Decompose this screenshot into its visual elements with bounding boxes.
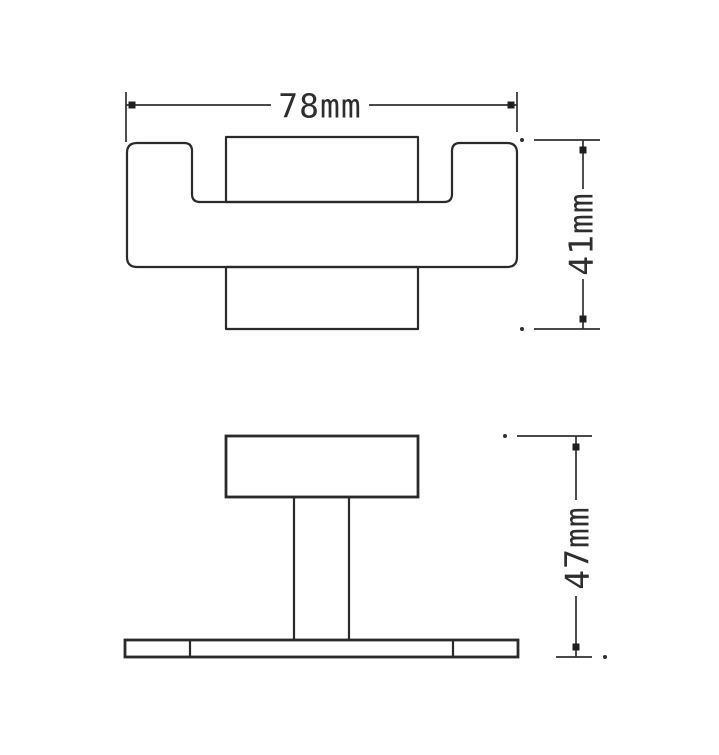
technical-drawing-canvas: 78mm 41mm	[0, 0, 719, 755]
top-view-crossbar	[226, 137, 418, 202]
width-arrow-left	[129, 102, 136, 109]
depth-dimension-label: 41mm	[562, 192, 601, 275]
height-arrow-bottom	[573, 644, 580, 651]
height-witness-dot-top	[503, 434, 507, 438]
depth-dimension-label-group: 41mm	[562, 189, 601, 279]
top-view-body-outline	[127, 143, 517, 267]
front-view-base-plate-segments	[190, 640, 453, 657]
depth-arrow-bottom	[580, 316, 587, 323]
dimension-height: 47mm	[503, 434, 607, 659]
front-view-head	[226, 436, 418, 497]
dimension-width: 78mm	[126, 87, 517, 143]
front-view-base-plate	[125, 640, 518, 657]
depth-arrow-top	[580, 147, 587, 154]
width-dimension-label: 78mm	[278, 87, 361, 126]
dimension-depth: 41mm	[520, 138, 601, 331]
top-view-base-tab	[226, 267, 418, 329]
width-arrow-right	[508, 102, 515, 109]
height-arrow-top	[573, 444, 580, 451]
height-dimension-label: 47mm	[558, 506, 597, 589]
front-view-stem	[294, 497, 349, 640]
top-view	[127, 137, 517, 329]
height-witness-dot-bottom	[603, 655, 607, 659]
front-view	[125, 436, 518, 657]
technical-drawing-page: 78mm 41mm	[0, 0, 719, 755]
depth-witness-dot-bottom	[520, 327, 524, 331]
depth-witness-dot-top	[520, 138, 524, 142]
height-dimension-label-group: 47mm	[558, 500, 597, 596]
